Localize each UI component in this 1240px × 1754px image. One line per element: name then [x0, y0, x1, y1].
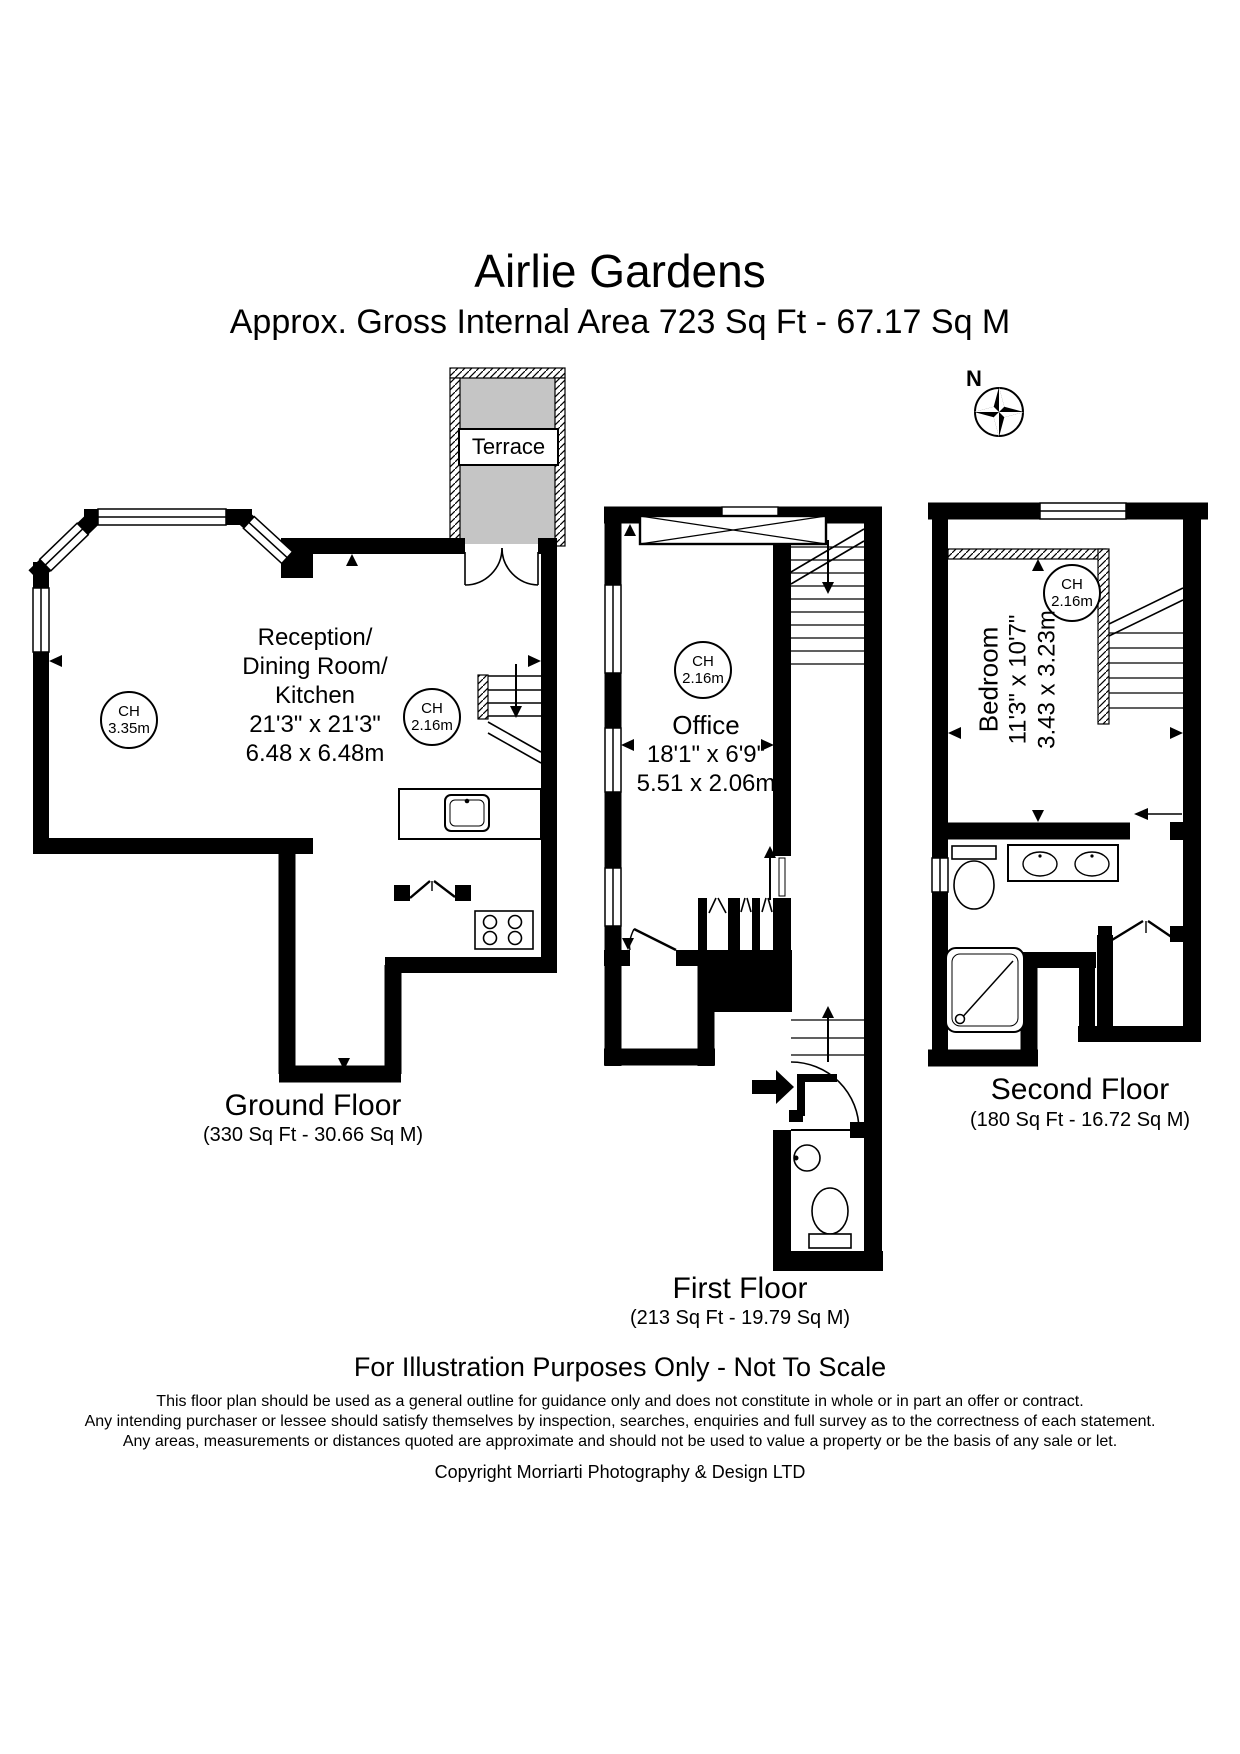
ch-label: CH — [118, 703, 140, 720]
first-floor-area: (213 Sq Ft - 19.79 Sq M) — [590, 1307, 890, 1330]
copyright: Copyright Morriarti Photography & Design… — [0, 1462, 1240, 1483]
first-stairs-lower — [791, 1006, 864, 1062]
room-line: Reception/ — [165, 623, 465, 652]
ch-label: CH — [692, 653, 714, 670]
hob — [475, 911, 533, 949]
first-floor-label: First Floor — [590, 1272, 890, 1306]
office-room-label: Office 18'1" x 6'9" 5.51 x 2.06m — [606, 711, 806, 798]
second-stairs — [1109, 588, 1183, 708]
first-stairs-upper — [791, 529, 864, 664]
first-floor-plan — [604, 507, 883, 1271]
ceiling-height-badge: CH 3.35m — [100, 691, 158, 749]
room-line: 5.51 x 2.06m — [606, 769, 806, 798]
page-subtitle: Approx. Gross Internal Area 723 Sq Ft - … — [0, 303, 1240, 342]
disclaimer-line: Any areas, measurements or distances quo… — [0, 1432, 1240, 1452]
room-line: Dining Room/ — [165, 652, 465, 681]
wc-fixtures — [791, 1122, 864, 1248]
ground-floor-area: (330 Sq Ft - 30.66 Sq M) — [163, 1124, 463, 1147]
bedroom-door-arrow — [1134, 808, 1182, 820]
floorplan-page: Airlie Gardens Approx. Gross Internal Ar… — [0, 0, 1240, 1754]
disclaimer-line: Any intending purchaser or lessee should… — [0, 1412, 1240, 1432]
second-floor-area: (180 Sq Ft - 16.72 Sq M) — [930, 1109, 1230, 1132]
room-line: Office — [606, 711, 806, 740]
ch-value: 2.16m — [411, 717, 453, 734]
compass-icon — [974, 387, 1024, 437]
page-title: Airlie Gardens — [0, 244, 1240, 298]
entry-arrow-icon — [752, 1080, 776, 1094]
ground-closet — [394, 881, 471, 901]
toilet-tank — [952, 846, 996, 859]
bedroom-room-label: Bedroom 11'3" x 10'7" 3.43 x 3.23m — [975, 590, 1062, 770]
ch-value: 3.35m — [108, 720, 150, 737]
ch-label: CH — [1061, 576, 1083, 593]
illustration-notice: For Illustration Purposes Only - Not To … — [0, 1352, 1240, 1383]
first-closets — [698, 898, 772, 952]
disclaimer: This floor plan should be used as a gene… — [0, 1392, 1240, 1452]
toilet-icon — [812, 1188, 848, 1234]
entry-door — [752, 1062, 859, 1130]
ceiling-height-badge: CH 2.16m — [674, 641, 732, 699]
toilet-icon — [954, 861, 994, 909]
disclaimer-line: This floor plan should be used as a gene… — [0, 1392, 1240, 1412]
compass-north-label: N — [961, 366, 987, 392]
room-line: Bedroom — [975, 590, 1004, 770]
terrace-label: Terrace — [458, 428, 559, 466]
ground-floor-label: Ground Floor — [163, 1089, 463, 1123]
first-walls — [604, 507, 883, 1271]
ceiling-height-badge: CH 2.16m — [403, 688, 461, 746]
room-line: 11'3" x 10'7" — [1004, 590, 1033, 770]
second-floor-label: Second Floor — [930, 1073, 1230, 1107]
bathroom-door — [1098, 921, 1183, 944]
ch-label: CH — [421, 700, 443, 717]
kitchen-island — [399, 789, 541, 839]
room-line: 3.43 x 3.23m — [1033, 590, 1062, 770]
first-room-door — [630, 929, 677, 950]
ground-stairs — [478, 664, 541, 763]
ch-value: 2.16m — [682, 670, 724, 687]
room-line: 18'1" x 6'9" — [606, 740, 806, 769]
terrace-door — [465, 548, 538, 585]
